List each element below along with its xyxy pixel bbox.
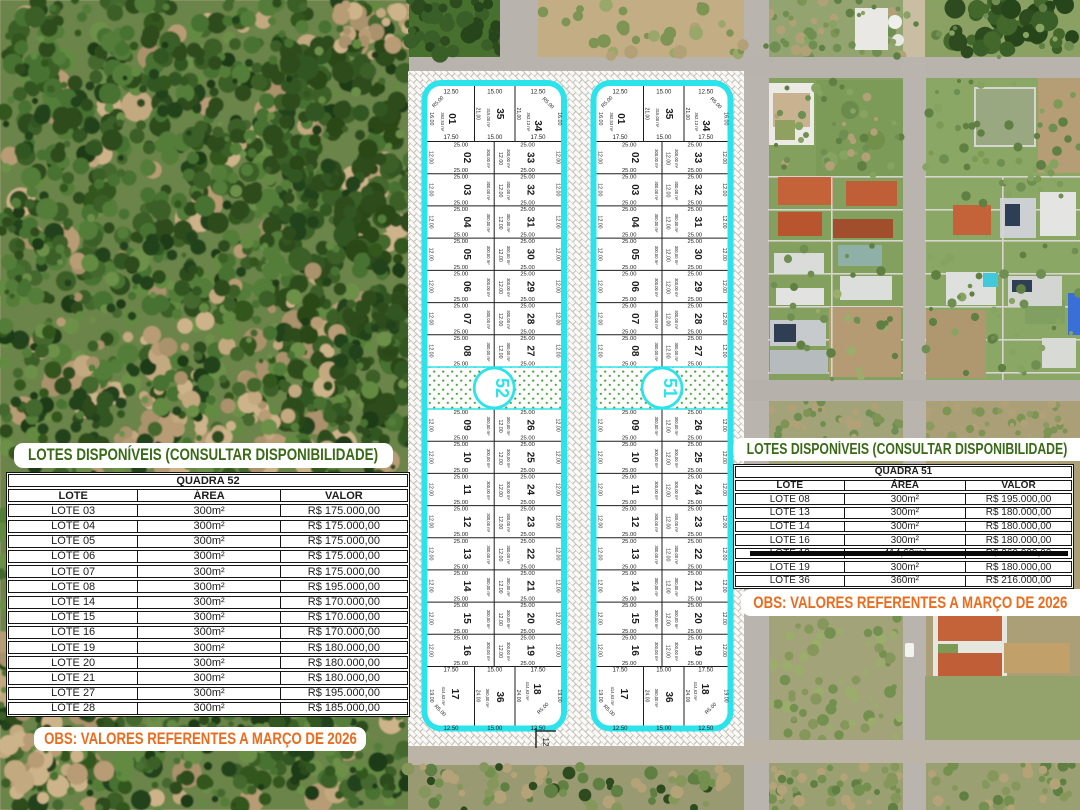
svg-text:15.00: 15.00 xyxy=(487,668,503,674)
svg-text:12.00: 12.00 xyxy=(665,452,671,465)
svg-text:300,00 m²: 300,00 m² xyxy=(486,513,491,532)
svg-text:28: 28 xyxy=(525,313,536,325)
svg-text:300,00 m²: 300,00 m² xyxy=(486,310,491,329)
svg-text:02: 02 xyxy=(461,152,472,164)
svg-text:300,00 m²: 300,00 m² xyxy=(506,149,511,168)
svg-text:04: 04 xyxy=(629,216,640,228)
svg-text:12.00: 12.00 xyxy=(428,644,434,657)
svg-text:25.00: 25.00 xyxy=(622,571,637,577)
svg-text:16: 16 xyxy=(629,645,640,657)
svg-text:12.00: 12.00 xyxy=(721,280,727,293)
svg-text:12.00: 12.00 xyxy=(497,281,503,294)
svg-text:35: 35 xyxy=(494,108,505,120)
svg-text:25.00: 25.00 xyxy=(622,410,637,416)
svg-text:09: 09 xyxy=(461,420,472,432)
svg-text:12.00: 12.00 xyxy=(497,516,503,529)
svg-text:21: 21 xyxy=(692,580,703,592)
svg-text:07: 07 xyxy=(629,313,640,325)
svg-text:12.00: 12.00 xyxy=(555,248,561,261)
svg-text:25.00: 25.00 xyxy=(688,271,703,277)
svg-text:25.00: 25.00 xyxy=(622,507,637,513)
svg-text:25.00: 25.00 xyxy=(520,661,535,667)
svg-text:25.00: 25.00 xyxy=(622,200,637,206)
svg-text:05: 05 xyxy=(629,249,640,261)
svg-text:300,00 m²: 300,00 m² xyxy=(654,214,659,233)
svg-text:06: 06 xyxy=(461,281,472,293)
svg-text:34: 34 xyxy=(700,120,711,132)
svg-text:12.00: 12.00 xyxy=(721,248,727,261)
svg-text:300,00 m²: 300,00 m² xyxy=(654,481,659,500)
svg-text:25.00: 25.00 xyxy=(688,468,703,474)
svg-text:25.00: 25.00 xyxy=(622,539,637,545)
svg-text:25.00: 25.00 xyxy=(520,168,535,174)
svg-text:25.00: 25.00 xyxy=(622,297,637,303)
svg-text:12.00: 12.00 xyxy=(497,345,503,358)
svg-text:12.00: 12.00 xyxy=(428,483,434,496)
svg-text:12: 12 xyxy=(461,516,472,528)
svg-text:12.00: 12.00 xyxy=(555,215,561,228)
svg-text:34: 34 xyxy=(532,120,543,132)
svg-text:17.50: 17.50 xyxy=(530,135,546,141)
svg-text:25.00: 25.00 xyxy=(622,207,637,213)
svg-text:25.00: 25.00 xyxy=(688,304,703,310)
svg-text:25.00: 25.00 xyxy=(622,532,637,538)
svg-text:25.00: 25.00 xyxy=(520,329,535,335)
svg-text:300,00 m²: 300,00 m² xyxy=(506,449,511,468)
svg-text:25.00: 25.00 xyxy=(520,265,535,271)
svg-text:25.00: 25.00 xyxy=(520,233,535,239)
svg-text:15.00: 15.00 xyxy=(656,726,672,732)
svg-text:300,00 m²: 300,00 m² xyxy=(674,578,679,597)
svg-text:15.00: 15.00 xyxy=(487,135,503,141)
svg-text:12.00: 12.00 xyxy=(721,418,727,431)
svg-text:300,00 m²: 300,00 m² xyxy=(486,149,491,168)
svg-text:12.00: 12.00 xyxy=(428,215,434,228)
svg-text:25.00: 25.00 xyxy=(520,436,535,442)
svg-text:12.00: 12.00 xyxy=(721,344,727,357)
svg-text:02: 02 xyxy=(629,152,640,164)
svg-text:51: 51 xyxy=(660,378,680,398)
svg-text:300,00 m²: 300,00 m² xyxy=(654,610,659,629)
svg-text:25.00: 25.00 xyxy=(622,442,637,448)
svg-text:12.00: 12.00 xyxy=(597,248,603,261)
svg-text:17.50: 17.50 xyxy=(698,135,714,141)
svg-text:25.00: 25.00 xyxy=(688,336,703,342)
svg-text:32: 32 xyxy=(692,184,703,196)
svg-text:12.00: 12.00 xyxy=(721,612,727,625)
svg-text:25.00: 25.00 xyxy=(622,329,637,335)
svg-text:24.00: 24.00 xyxy=(475,690,481,703)
svg-text:25.00: 25.00 xyxy=(688,507,703,513)
svg-text:12.00: 12.00 xyxy=(665,249,671,262)
svg-text:25.00: 25.00 xyxy=(688,571,703,577)
svg-text:12.50: 12.50 xyxy=(612,90,628,96)
svg-text:25.00: 25.00 xyxy=(622,474,637,480)
svg-text:25.00: 25.00 xyxy=(454,597,469,603)
svg-text:300,00 m²: 300,00 m² xyxy=(506,481,511,500)
svg-text:300,00 m²: 300,00 m² xyxy=(674,642,679,661)
svg-text:30: 30 xyxy=(525,249,536,261)
svg-text:300,00 m²: 300,00 m² xyxy=(674,214,679,233)
svg-text:15.00: 15.00 xyxy=(656,135,672,141)
svg-text:25: 25 xyxy=(692,452,703,464)
svg-text:12.00: 12.00 xyxy=(497,645,503,658)
svg-text:06: 06 xyxy=(629,281,640,293)
svg-text:12.00: 12.00 xyxy=(497,152,503,165)
svg-text:16.00: 16.00 xyxy=(597,112,603,125)
svg-text:300,00 m²: 300,00 m² xyxy=(486,545,491,564)
svg-text:25.00: 25.00 xyxy=(520,442,535,448)
svg-text:12.00: 12.00 xyxy=(665,184,671,197)
svg-text:300,00 m²: 300,00 m² xyxy=(674,449,679,468)
svg-text:12.00: 12.00 xyxy=(555,344,561,357)
svg-text:11: 11 xyxy=(461,484,472,495)
svg-text:300,00 m²: 300,00 m² xyxy=(506,181,511,200)
svg-text:300,00 m²: 300,00 m² xyxy=(674,181,679,200)
svg-text:25.00: 25.00 xyxy=(622,597,637,603)
svg-text:25.00: 25.00 xyxy=(688,410,703,416)
svg-text:360,00 m²: 360,00 m² xyxy=(485,689,490,708)
svg-text:28: 28 xyxy=(692,313,703,325)
svg-text:26: 26 xyxy=(525,420,536,432)
svg-text:12.00: 12.00 xyxy=(555,547,561,560)
svg-text:25.00: 25.00 xyxy=(454,635,469,641)
svg-text:300,00 m²: 300,00 m² xyxy=(674,246,679,265)
svg-text:12.00: 12.00 xyxy=(721,151,727,164)
svg-text:25.00: 25.00 xyxy=(520,635,535,641)
svg-text:33: 33 xyxy=(525,152,536,164)
svg-text:12.00: 12.00 xyxy=(428,547,434,560)
svg-text:25.00: 25.00 xyxy=(622,175,637,181)
svg-text:25.00: 25.00 xyxy=(688,239,703,245)
svg-text:19.00: 19.00 xyxy=(556,689,562,702)
svg-text:12.00: 12.00 xyxy=(555,183,561,196)
svg-text:300,00 m²: 300,00 m² xyxy=(674,342,679,361)
svg-text:16.00: 16.00 xyxy=(556,112,562,125)
svg-text:25.00: 25.00 xyxy=(688,168,703,174)
svg-text:12.00: 12.00 xyxy=(497,452,503,465)
svg-text:12.00: 12.00 xyxy=(597,612,603,625)
svg-text:12.00: 12.00 xyxy=(597,483,603,496)
svg-text:09: 09 xyxy=(629,420,640,432)
svg-text:15.00: 15.00 xyxy=(487,726,503,732)
svg-text:25.00: 25.00 xyxy=(520,175,535,181)
svg-text:300,00 m²: 300,00 m² xyxy=(654,417,659,436)
svg-text:21,00: 21,00 xyxy=(475,108,481,121)
svg-text:300,00 m²: 300,00 m² xyxy=(674,610,679,629)
svg-text:12.00: 12.00 xyxy=(555,418,561,431)
svg-text:300,00 m²: 300,00 m² xyxy=(486,417,491,436)
svg-text:31: 31 xyxy=(692,216,703,228)
svg-text:12.50: 12.50 xyxy=(612,726,628,732)
svg-text:362,53 m²: 362,53 m² xyxy=(609,112,614,131)
svg-text:01: 01 xyxy=(615,113,626,125)
svg-text:12.00: 12.00 xyxy=(555,483,561,496)
svg-text:300,00 m²: 300,00 m² xyxy=(486,342,491,361)
svg-text:19.00: 19.00 xyxy=(597,689,603,702)
svg-text:13: 13 xyxy=(629,548,640,560)
svg-text:12.00: 12.00 xyxy=(497,548,503,561)
svg-text:32: 32 xyxy=(525,184,536,196)
svg-text:12.00: 12.00 xyxy=(428,248,434,261)
svg-text:18: 18 xyxy=(531,683,542,695)
svg-text:12.50: 12.50 xyxy=(530,90,546,96)
svg-text:12.00: 12.00 xyxy=(497,419,503,432)
svg-text:300,00 m²: 300,00 m² xyxy=(486,181,491,200)
svg-text:25.00: 25.00 xyxy=(520,507,535,513)
svg-text:25.00: 25.00 xyxy=(454,233,469,239)
svg-text:300,00 m²: 300,00 m² xyxy=(506,214,511,233)
svg-text:25.00: 25.00 xyxy=(454,507,469,513)
svg-text:05: 05 xyxy=(461,249,472,261)
svg-text:414,63 m²: 414,63 m² xyxy=(525,682,530,701)
svg-text:25.00: 25.00 xyxy=(622,661,637,667)
svg-text:25.00: 25.00 xyxy=(454,336,469,342)
svg-text:25.00: 25.00 xyxy=(454,329,469,335)
svg-text:25.00: 25.00 xyxy=(454,168,469,174)
svg-text:03: 03 xyxy=(629,184,640,196)
svg-text:01: 01 xyxy=(446,113,457,125)
svg-text:25.00: 25.00 xyxy=(520,271,535,277)
svg-text:12.00: 12.00 xyxy=(597,215,603,228)
svg-text:23: 23 xyxy=(525,516,536,528)
svg-text:25.00: 25.00 xyxy=(454,200,469,206)
svg-text:12.50: 12.50 xyxy=(443,726,459,732)
svg-text:12.00: 12.00 xyxy=(597,451,603,464)
svg-text:12.00: 12.00 xyxy=(665,313,671,326)
svg-text:12.00: 12.00 xyxy=(597,579,603,592)
svg-text:300,00 m²: 300,00 m² xyxy=(506,513,511,532)
svg-text:12.00: 12.00 xyxy=(665,345,671,358)
svg-text:414,63 m²: 414,63 m² xyxy=(441,687,446,706)
svg-text:17.50: 17.50 xyxy=(443,668,459,674)
svg-text:25.00: 25.00 xyxy=(688,629,703,635)
svg-text:360,00 m²: 360,00 m² xyxy=(654,689,659,708)
svg-text:300,00 m²: 300,00 m² xyxy=(486,214,491,233)
svg-text:300,00 m²: 300,00 m² xyxy=(506,310,511,329)
svg-text:25: 25 xyxy=(525,452,536,464)
svg-text:25.00: 25.00 xyxy=(454,175,469,181)
svg-text:25.00: 25.00 xyxy=(622,436,637,442)
svg-text:20: 20 xyxy=(692,613,703,625)
svg-text:21: 21 xyxy=(525,580,536,592)
svg-text:10: 10 xyxy=(461,452,472,464)
svg-text:25.00: 25.00 xyxy=(454,603,469,609)
svg-text:07: 07 xyxy=(461,313,472,325)
svg-text:25.00: 25.00 xyxy=(622,629,637,635)
svg-text:25.00: 25.00 xyxy=(688,143,703,149)
svg-text:19: 19 xyxy=(525,645,536,657)
svg-text:25.00: 25.00 xyxy=(688,597,703,603)
svg-text:300,00 m²: 300,00 m² xyxy=(486,578,491,597)
svg-text:36: 36 xyxy=(494,691,505,703)
svg-text:25.00: 25.00 xyxy=(454,410,469,416)
svg-text:12.00: 12.00 xyxy=(428,183,434,196)
svg-text:25.00: 25.00 xyxy=(520,410,535,416)
svg-text:12.00: 12.00 xyxy=(597,312,603,325)
svg-text:25.00: 25.00 xyxy=(454,468,469,474)
svg-text:31: 31 xyxy=(525,216,536,228)
svg-text:25.00: 25.00 xyxy=(454,629,469,635)
svg-text:25.00: 25.00 xyxy=(454,564,469,570)
svg-text:20: 20 xyxy=(525,613,536,625)
svg-text:12.50: 12.50 xyxy=(698,90,714,96)
svg-text:13: 13 xyxy=(461,548,472,560)
svg-text:12.00: 12.00 xyxy=(555,451,561,464)
svg-text:25.00: 25.00 xyxy=(520,468,535,474)
svg-text:12.00: 12.00 xyxy=(597,644,603,657)
svg-text:25.00: 25.00 xyxy=(622,265,637,271)
svg-text:362,13 m²: 362,13 m² xyxy=(526,112,531,131)
svg-text:12.00: 12.00 xyxy=(665,419,671,432)
svg-text:25.00: 25.00 xyxy=(688,474,703,480)
svg-text:25.00: 25.00 xyxy=(520,500,535,506)
svg-text:414,63 m²: 414,63 m² xyxy=(610,687,615,706)
svg-text:25.00: 25.00 xyxy=(520,571,535,577)
svg-text:12.00: 12.00 xyxy=(665,281,671,294)
svg-text:25.00: 25.00 xyxy=(688,207,703,213)
svg-text:25.00: 25.00 xyxy=(454,239,469,245)
svg-text:08: 08 xyxy=(629,345,640,357)
svg-text:12.00: 12.00 xyxy=(497,484,503,497)
svg-text:12.00: 12.00 xyxy=(721,483,727,496)
svg-text:12.00: 12.00 xyxy=(497,580,503,593)
svg-text:12: 12 xyxy=(629,516,640,528)
svg-text:12.00: 12.00 xyxy=(597,183,603,196)
svg-text:25.00: 25.00 xyxy=(688,233,703,239)
svg-text:25.00: 25.00 xyxy=(688,500,703,506)
svg-text:29: 29 xyxy=(692,281,703,293)
svg-text:17.50: 17.50 xyxy=(612,135,628,141)
svg-text:25.00: 25.00 xyxy=(454,304,469,310)
svg-text:19.00: 19.00 xyxy=(428,689,434,702)
svg-text:12.00: 12.00 xyxy=(597,344,603,357)
svg-text:27: 27 xyxy=(525,345,536,357)
svg-text:12.00: 12.00 xyxy=(555,644,561,657)
svg-text:12.00: 12.00 xyxy=(665,216,671,229)
svg-text:300,00 m²: 300,00 m² xyxy=(506,642,511,661)
svg-text:25.00: 25.00 xyxy=(622,468,637,474)
svg-text:25.00: 25.00 xyxy=(520,532,535,538)
svg-text:25.00: 25.00 xyxy=(688,442,703,448)
svg-text:15.00: 15.00 xyxy=(656,90,672,96)
svg-text:12.00: 12.00 xyxy=(597,280,603,293)
svg-text:52: 52 xyxy=(492,378,512,398)
svg-text:12.00: 12.00 xyxy=(721,579,727,592)
svg-text:25.00: 25.00 xyxy=(520,239,535,245)
svg-text:25.00: 25.00 xyxy=(688,265,703,271)
svg-text:15: 15 xyxy=(461,613,472,625)
svg-text:25.00: 25.00 xyxy=(688,436,703,442)
svg-text:300,00 m²: 300,00 m² xyxy=(486,610,491,629)
svg-text:12.00: 12.00 xyxy=(555,312,561,325)
svg-text:25.00: 25.00 xyxy=(520,143,535,149)
svg-text:33: 33 xyxy=(692,152,703,164)
svg-text:25.00: 25.00 xyxy=(454,265,469,271)
svg-text:12.00: 12.00 xyxy=(497,184,503,197)
svg-text:17: 17 xyxy=(449,688,460,700)
svg-text:12.00: 12.00 xyxy=(497,249,503,262)
svg-text:12.00: 12.00 xyxy=(665,645,671,658)
svg-text:25.00: 25.00 xyxy=(520,304,535,310)
svg-text:25.00: 25.00 xyxy=(454,474,469,480)
svg-text:21,00: 21,00 xyxy=(515,108,521,121)
svg-text:25.00: 25.00 xyxy=(622,603,637,609)
svg-text:300,00 m²: 300,00 m² xyxy=(674,513,679,532)
svg-text:300,00 m²: 300,00 m² xyxy=(674,481,679,500)
svg-text:25.00: 25.00 xyxy=(454,207,469,213)
svg-text:35: 35 xyxy=(663,108,674,120)
svg-text:25.00: 25.00 xyxy=(688,603,703,609)
svg-text:362,53 m²: 362,53 m² xyxy=(440,112,445,131)
svg-text:27: 27 xyxy=(692,345,703,357)
svg-text:12.00: 12.00 xyxy=(555,280,561,293)
svg-text:12.00: 12.00 xyxy=(428,515,434,528)
svg-text:25.00: 25.00 xyxy=(622,239,637,245)
svg-text:17.50: 17.50 xyxy=(612,668,628,674)
svg-text:300,00 m²: 300,00 m² xyxy=(486,246,491,265)
svg-text:12.00: 12.00 xyxy=(428,612,434,625)
svg-text:25.00: 25.00 xyxy=(688,200,703,206)
svg-text:300,00 m²: 300,00 m² xyxy=(654,181,659,200)
svg-text:12.00: 12.00 xyxy=(665,152,671,165)
svg-text:12.00: 12.00 xyxy=(721,215,727,228)
svg-text:17: 17 xyxy=(618,688,629,700)
svg-text:12.00: 12.00 xyxy=(597,151,603,164)
svg-text:17.50: 17.50 xyxy=(443,135,459,141)
svg-text:300,00 m²: 300,00 m² xyxy=(654,342,659,361)
svg-text:12.00: 12.00 xyxy=(665,580,671,593)
svg-text:25.00: 25.00 xyxy=(520,629,535,635)
svg-text:300,00 m²: 300,00 m² xyxy=(506,610,511,629)
svg-text:300,00 m²: 300,00 m² xyxy=(654,278,659,297)
svg-text:300,00 m²: 300,00 m² xyxy=(506,278,511,297)
svg-text:29: 29 xyxy=(525,281,536,293)
svg-text:15.00: 15.00 xyxy=(487,90,503,96)
svg-text:300,00 m²: 300,00 m² xyxy=(654,310,659,329)
svg-text:25.00: 25.00 xyxy=(520,597,535,603)
svg-text:25.00: 25.00 xyxy=(622,635,637,641)
svg-text:300,00 m²: 300,00 m² xyxy=(506,342,511,361)
svg-text:25.00: 25.00 xyxy=(622,336,637,342)
svg-text:300,00 m²: 300,00 m² xyxy=(654,545,659,564)
svg-text:362,13 m²: 362,13 m² xyxy=(694,112,699,131)
svg-text:300,00 m²: 300,00 m² xyxy=(486,449,491,468)
svg-text:25.00: 25.00 xyxy=(454,297,469,303)
svg-text:315,00 m²: 315,00 m² xyxy=(486,108,491,127)
svg-text:25.00: 25.00 xyxy=(520,603,535,609)
svg-text:12.00: 12.00 xyxy=(428,151,434,164)
svg-text:24.00: 24.00 xyxy=(644,690,650,703)
svg-text:12.00: 12.00 xyxy=(428,451,434,464)
svg-text:19: 19 xyxy=(692,645,703,657)
svg-text:12.00: 12.00 xyxy=(665,548,671,561)
svg-text:300,00 m²: 300,00 m² xyxy=(506,545,511,564)
svg-text:25.00: 25.00 xyxy=(520,474,535,480)
svg-text:12.00: 12.00 xyxy=(555,515,561,528)
svg-text:25.00: 25.00 xyxy=(454,436,469,442)
svg-text:12.00: 12.00 xyxy=(597,547,603,560)
svg-text:12.50: 12.50 xyxy=(698,726,714,732)
svg-text:300,00 m²: 300,00 m² xyxy=(674,310,679,329)
svg-text:315,00 m²: 315,00 m² xyxy=(655,108,660,127)
svg-text:300,00 m²: 300,00 m² xyxy=(654,513,659,532)
svg-text:12.00: 12.00 xyxy=(665,516,671,529)
svg-text:25.00: 25.00 xyxy=(622,564,637,570)
svg-text:14: 14 xyxy=(461,580,472,592)
svg-text:12.00: 12.00 xyxy=(665,484,671,497)
svg-text:12.00: 12.00 xyxy=(555,612,561,625)
